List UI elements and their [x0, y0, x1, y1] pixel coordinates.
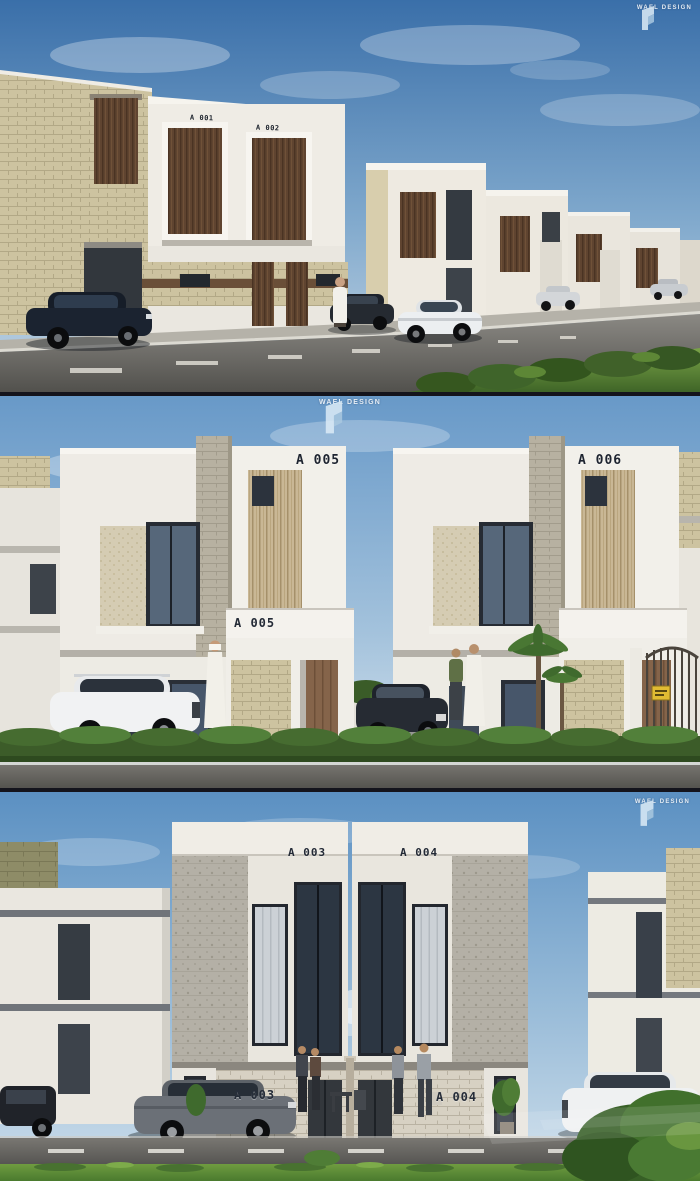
brand-logo-icon — [319, 399, 349, 435]
unit-label-a001-parapet: A 001 — [190, 114, 214, 123]
render-collage: A 001 A 002 WAEL DESIGN — [0, 0, 700, 1181]
unit-label-a006-tower: A 006 — [578, 453, 622, 468]
brand-watermark: WAEL DESIGN — [319, 399, 381, 406]
panel-elevation-a005-a006: A 005 A 006 A 005 WAEL DESIGN — [0, 396, 700, 788]
hedge — [0, 726, 700, 762]
unit-label-a005-tower: A 005 — [296, 453, 340, 468]
unit-label-a003-parapet: A 003 — [288, 846, 326, 859]
render-street-view — [0, 0, 700, 392]
brand-watermark: WAEL DESIGN — [637, 5, 692, 11]
brand-logo-icon — [635, 799, 659, 827]
warning-sign — [652, 686, 670, 700]
unit-label-a004-entrance: A 004 — [436, 1090, 477, 1104]
road — [0, 762, 700, 788]
render-elevation-a003-a004 — [0, 792, 700, 1181]
unit-label-a003-entrance: A 003 — [234, 1088, 275, 1102]
brand-logo-icon — [637, 5, 659, 31]
panel-elevation-a003-a004: A 003 A 004 A 003 A 004 WAEL DESIGN — [0, 792, 700, 1181]
unit-label-a002-parapet: A 002 — [256, 124, 280, 133]
unit-label-a004-parapet: A 004 — [400, 846, 438, 859]
brand-watermark: WAEL DESIGN — [635, 799, 690, 805]
unit-label-a005-entrance: A 005 — [234, 616, 275, 630]
panel-street-perspective: A 001 A 002 WAEL DESIGN — [0, 0, 700, 392]
